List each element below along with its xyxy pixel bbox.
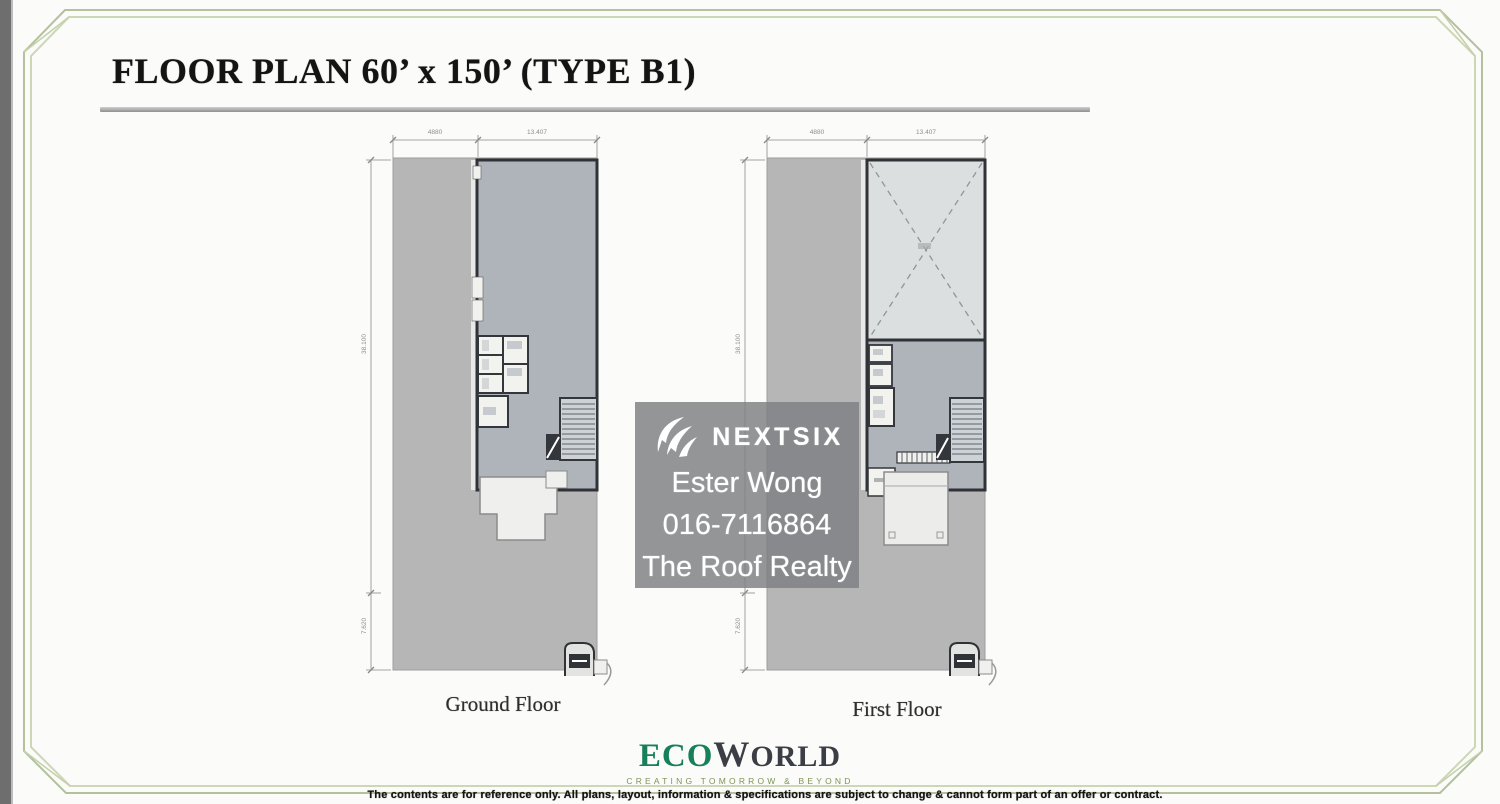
- ff-gate-detail: [950, 643, 996, 685]
- disclaimer-text: The contents are for reference only. All…: [290, 789, 1240, 801]
- gf-gate-detail: [565, 643, 611, 685]
- ff-dim-label-left-width: 4880: [782, 129, 852, 137]
- gf-dim-label-right-width: 13.407: [502, 129, 572, 137]
- first-floor-label: First Floor: [812, 697, 982, 722]
- page-left-edge-highlight: [11, 0, 13, 804]
- ecoworld-logo-eco: ECO: [639, 738, 714, 775]
- ff-void-room: [867, 162, 985, 341]
- watermark-agency: The Roof Realty: [642, 546, 852, 588]
- gf-dim-label-left-width: 4880: [400, 129, 470, 137]
- page-title: FLOOR PLAN 60’ x 150’ (TYPE B1): [112, 50, 1112, 92]
- ecoworld-logo: ECOWORLD CREATING TOMORROW & BEYOND: [600, 733, 880, 786]
- ground-floor-label: Ground Floor: [418, 692, 588, 717]
- page-left-edge-strip: [0, 0, 11, 804]
- watermark-brand: NEXTSIX: [712, 423, 843, 452]
- ff-dim-label-right-width: 13.407: [891, 129, 961, 137]
- ff-toilet-rooms: [869, 345, 894, 426]
- ground-floor-plan: [360, 128, 615, 688]
- ff-dim-label-depth-lower: 7.620: [735, 606, 743, 646]
- gf-dim-label-depth-lower: 7.620: [361, 606, 369, 646]
- nextsix-logo-icon: [650, 412, 704, 462]
- ff-dim-label-depth-main: 38.100: [735, 324, 743, 364]
- title-underline: [100, 107, 1090, 112]
- watermark-logo-row: NEXTSIX: [650, 412, 843, 462]
- floor-plan-page: FLOOR PLAN 60’ x 150’ (TYPE B1): [0, 0, 1500, 804]
- agent-watermark: NEXTSIX Ester Wong 016-7116864 The Roof …: [635, 402, 859, 588]
- ff-balcony: [884, 472, 948, 545]
- ecoworld-logo-world: WORLD: [713, 733, 841, 775]
- watermark-agent-phone: 016-7116864: [663, 504, 832, 546]
- gf-dim-label-depth-main: 38.100: [361, 324, 369, 364]
- watermark-agent-name: Ester Wong: [672, 462, 823, 504]
- ecoworld-tagline: CREATING TOMORROW & BEYOND: [600, 776, 880, 786]
